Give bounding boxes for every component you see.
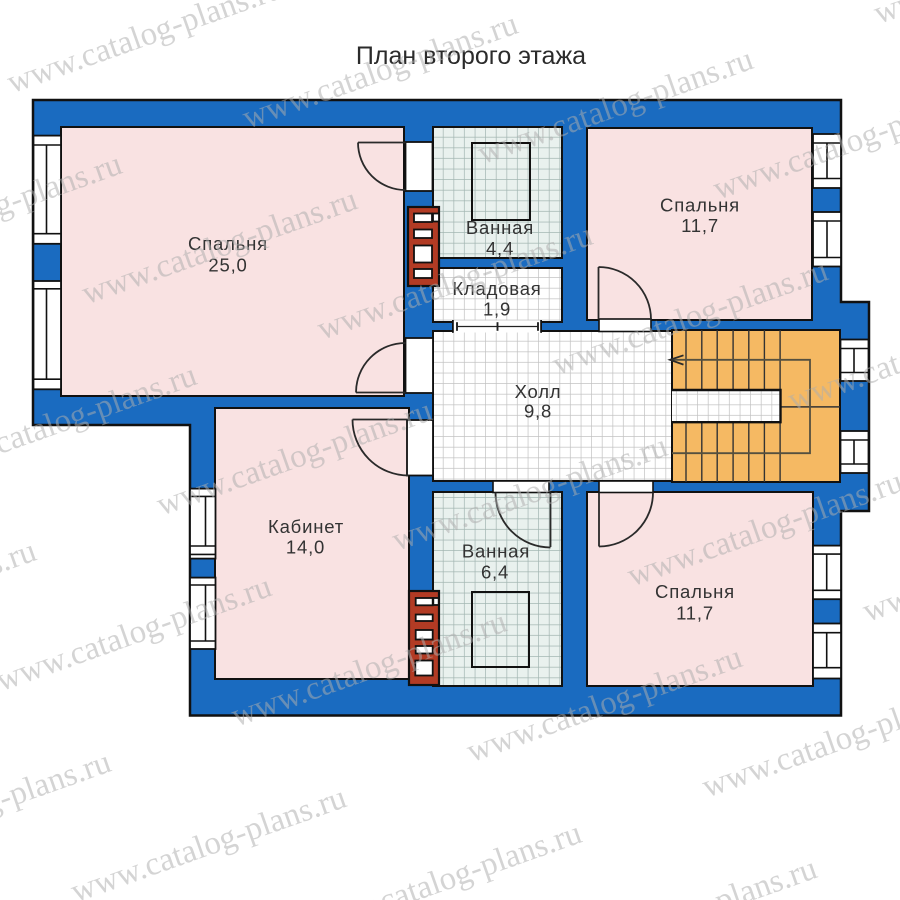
svg-text:6,4: 6,4	[481, 562, 509, 583]
svg-text:14,0: 14,0	[286, 537, 325, 558]
svg-text:Спальня: Спальня	[655, 581, 735, 602]
svg-text:11,7: 11,7	[681, 215, 719, 236]
svg-text:11,7: 11,7	[676, 603, 714, 624]
svg-text:9,8: 9,8	[524, 401, 552, 422]
svg-text:Кабинет: Кабинет	[268, 516, 344, 537]
svg-text:Ванная: Ванная	[466, 217, 534, 238]
svg-text:1,9: 1,9	[483, 299, 511, 320]
svg-text:Ванная: Ванная	[462, 541, 530, 562]
svg-text:Холл: Холл	[515, 381, 562, 402]
